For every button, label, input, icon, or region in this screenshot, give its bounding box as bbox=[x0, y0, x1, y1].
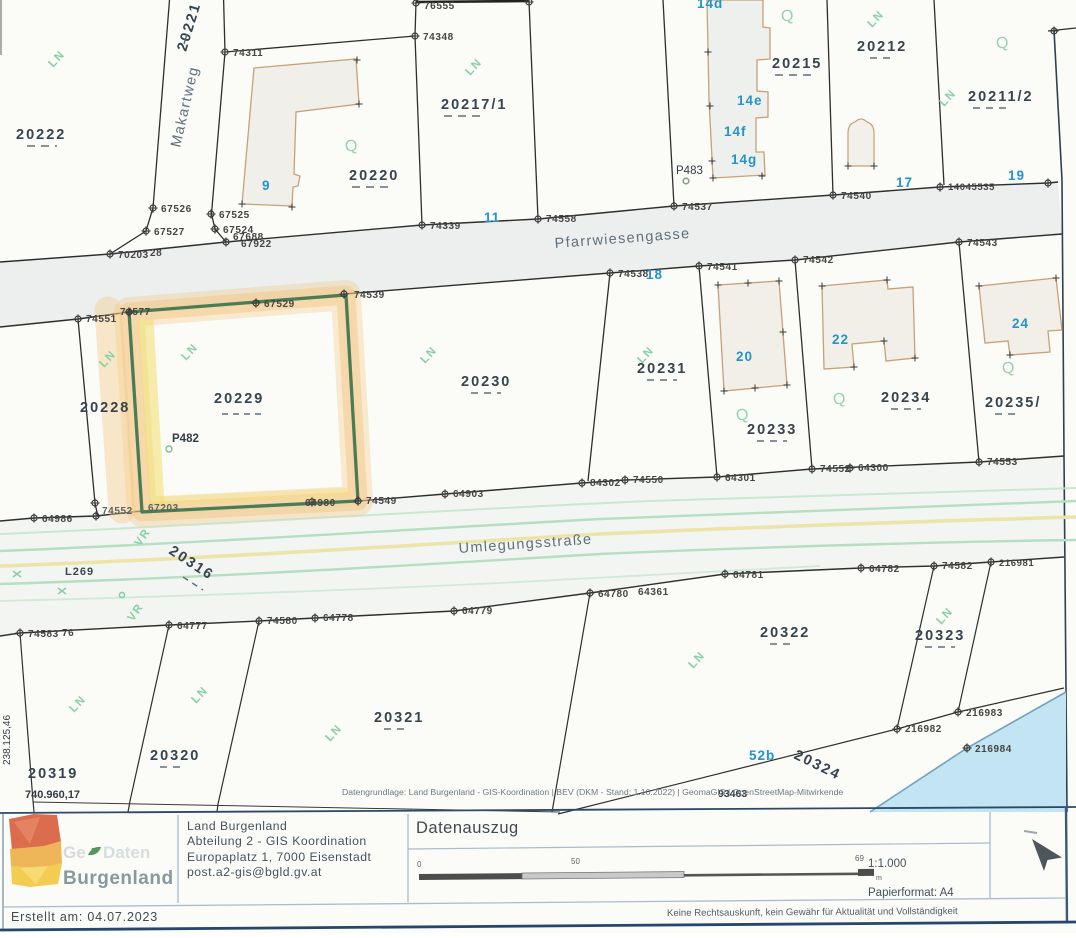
svg-text:64986: 64986 bbox=[42, 514, 73, 525]
svg-text:64779: 64779 bbox=[462, 606, 493, 617]
svg-text:Abteilung 2 - GIS Koordination: Abteilung 2 - GIS Koordination bbox=[187, 834, 367, 848]
svg-text:20234: 20234 bbox=[881, 390, 931, 406]
svg-text:64777: 64777 bbox=[177, 621, 208, 632]
svg-text:69: 69 bbox=[855, 854, 864, 863]
svg-text:P482: P482 bbox=[172, 433, 199, 445]
svg-text:67527: 67527 bbox=[154, 227, 185, 238]
svg-text:20320: 20320 bbox=[150, 748, 200, 764]
svg-text:740.960,17: 740.960,17 bbox=[25, 789, 80, 801]
svg-text:1:1.000: 1:1.000 bbox=[868, 858, 906, 870]
svg-text:20: 20 bbox=[736, 349, 753, 364]
svg-text:22: 22 bbox=[832, 332, 849, 347]
svg-text:14d: 14d bbox=[697, 0, 723, 11]
svg-text:64980: 64980 bbox=[305, 498, 336, 509]
svg-text:74577: 74577 bbox=[120, 307, 151, 318]
svg-text:20220: 20220 bbox=[349, 168, 399, 184]
svg-text:67203: 67203 bbox=[148, 503, 179, 514]
svg-text:74539: 74539 bbox=[354, 290, 385, 301]
svg-text:14e: 14e bbox=[737, 93, 763, 108]
svg-text:74541: 74541 bbox=[707, 262, 738, 273]
svg-text:Burgenland: Burgenland bbox=[63, 868, 174, 889]
svg-text:64361: 64361 bbox=[638, 587, 669, 598]
svg-text:76: 76 bbox=[62, 628, 74, 639]
svg-text:20215: 20215 bbox=[772, 56, 822, 72]
svg-text:64781: 64781 bbox=[733, 570, 764, 581]
svg-text:Europaplatz 1, 7000 Eisenstadt: Europaplatz 1, 7000 Eisenstadt bbox=[187, 850, 372, 864]
svg-text:216984: 216984 bbox=[975, 744, 1012, 755]
svg-text:Ge: Ge bbox=[63, 843, 86, 862]
svg-text:67922: 67922 bbox=[241, 239, 272, 250]
svg-text:74552: 74552 bbox=[102, 506, 133, 517]
svg-text:74558: 74558 bbox=[546, 214, 577, 225]
svg-text:19: 19 bbox=[1008, 168, 1025, 183]
svg-text:64782: 64782 bbox=[869, 564, 900, 575]
svg-text:64903: 64903 bbox=[453, 489, 484, 500]
svg-text:74339: 74339 bbox=[430, 221, 461, 232]
svg-text:74552: 74552 bbox=[820, 464, 851, 475]
svg-text:20228: 20228 bbox=[80, 400, 130, 416]
svg-text:74311: 74311 bbox=[233, 48, 263, 59]
svg-text:18: 18 bbox=[646, 267, 663, 282]
svg-text:74542: 74542 bbox=[803, 255, 834, 266]
svg-text:64778: 64778 bbox=[323, 613, 354, 624]
svg-text:Daten: Daten bbox=[103, 843, 150, 862]
svg-text:17: 17 bbox=[896, 175, 913, 190]
svg-text:20321: 20321 bbox=[374, 710, 424, 726]
svg-text:0: 0 bbox=[417, 860, 422, 869]
svg-text:20323: 20323 bbox=[915, 628, 965, 644]
svg-text:P483: P483 bbox=[676, 165, 703, 177]
svg-text:m: m bbox=[876, 875, 882, 882]
svg-text:76555: 76555 bbox=[424, 1, 455, 12]
svg-text:74543: 74543 bbox=[967, 238, 998, 249]
svg-text:64301: 64301 bbox=[725, 473, 756, 484]
svg-text:74348: 74348 bbox=[423, 32, 454, 43]
svg-text:11: 11 bbox=[484, 210, 500, 225]
svg-text:post.a2-gis@bgld.gv.at: post.a2-gis@bgld.gv.at bbox=[187, 865, 322, 879]
svg-text:20229: 20229 bbox=[214, 391, 264, 407]
svg-text:216983: 216983 bbox=[966, 708, 1003, 719]
svg-text:52b: 52b bbox=[749, 748, 775, 763]
svg-text:20322: 20322 bbox=[760, 625, 810, 641]
svg-text:74583: 74583 bbox=[28, 629, 59, 640]
svg-text:20222: 20222 bbox=[16, 127, 66, 143]
svg-text:216981: 216981 bbox=[999, 558, 1034, 569]
svg-text:20212: 20212 bbox=[857, 39, 907, 55]
svg-text:74537: 74537 bbox=[682, 202, 713, 213]
svg-text:20319: 20319 bbox=[28, 766, 78, 782]
svg-text:14f: 14f bbox=[724, 124, 747, 139]
svg-text:238.125,46: 238.125,46 bbox=[2, 715, 13, 765]
svg-text:L269: L269 bbox=[65, 566, 94, 578]
svg-text:Datengrundlage: Land Burgenlan: Datengrundlage: Land Burgenland - GIS-Ko… bbox=[342, 787, 843, 797]
svg-text:Keine Rechtsauskunft, kein Gew: Keine Rechtsauskunft, kein Gewähr für Ak… bbox=[667, 906, 958, 919]
svg-text:67526: 67526 bbox=[161, 204, 192, 215]
svg-text:24: 24 bbox=[1012, 316, 1029, 331]
svg-text:74538: 74538 bbox=[618, 269, 649, 280]
svg-text:67525: 67525 bbox=[219, 210, 250, 221]
svg-text:14045535: 14045535 bbox=[948, 182, 995, 193]
svg-text:50: 50 bbox=[571, 857, 580, 866]
svg-text:64780: 64780 bbox=[598, 589, 629, 600]
svg-text:74553: 74553 bbox=[987, 457, 1018, 468]
svg-text:67529: 67529 bbox=[264, 299, 295, 310]
svg-text:20211/2: 20211/2 bbox=[968, 89, 1034, 105]
svg-text:74549: 74549 bbox=[366, 496, 397, 507]
svg-text:20235/: 20235/ bbox=[985, 395, 1041, 411]
svg-text:74550: 74550 bbox=[633, 475, 664, 486]
svg-text:74551: 74551 bbox=[86, 314, 117, 325]
svg-text:Datenauszug: Datenauszug bbox=[416, 819, 519, 837]
svg-text:Papierformat: A4: Papierformat: A4 bbox=[868, 887, 954, 899]
svg-text:70203: 70203 bbox=[118, 250, 149, 261]
svg-text:67524: 67524 bbox=[223, 225, 254, 236]
svg-text:20217/1: 20217/1 bbox=[441, 97, 507, 113]
svg-text:9: 9 bbox=[262, 178, 271, 193]
svg-text:74582: 74582 bbox=[942, 561, 973, 572]
svg-text:74540: 74540 bbox=[841, 191, 872, 202]
svg-text:Erstellt am: 04.07.2023: Erstellt am: 04.07.2023 bbox=[11, 910, 158, 924]
svg-text:74580: 74580 bbox=[267, 616, 298, 627]
svg-text:20230: 20230 bbox=[461, 374, 511, 390]
svg-text:20233: 20233 bbox=[747, 422, 797, 438]
svg-text:Land Burgenland: Land Burgenland bbox=[187, 819, 287, 833]
svg-text:14g: 14g bbox=[731, 152, 757, 167]
svg-text:64300: 64300 bbox=[858, 463, 889, 474]
svg-text:28: 28 bbox=[150, 248, 162, 259]
svg-text:84302: 84302 bbox=[590, 478, 621, 489]
svg-text:216982: 216982 bbox=[905, 724, 942, 735]
